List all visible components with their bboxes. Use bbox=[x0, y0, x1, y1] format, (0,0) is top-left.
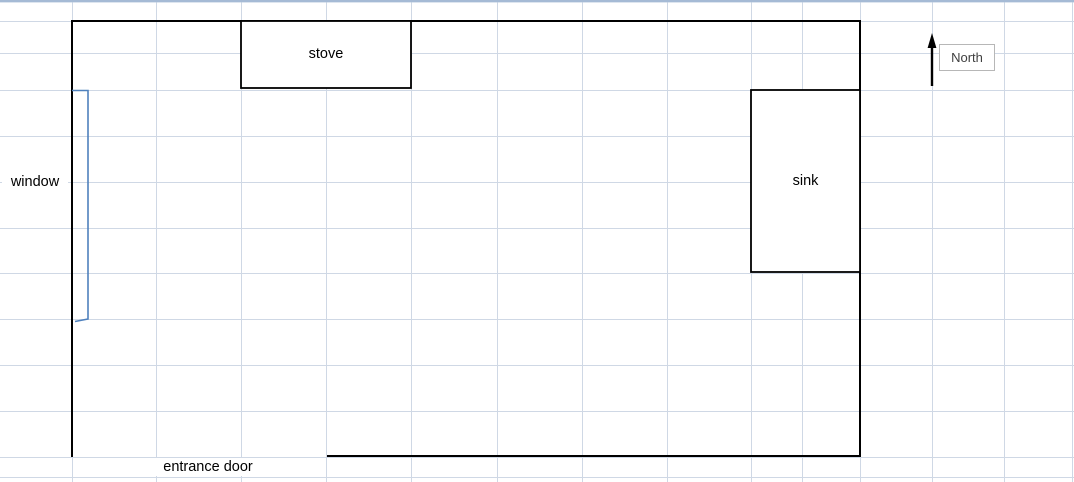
sink-label[interactable]: sink bbox=[751, 90, 860, 272]
window-label[interactable]: window bbox=[2, 169, 68, 195]
stove-label[interactable]: stove bbox=[241, 21, 411, 88]
north-arrow-icon[interactable] bbox=[928, 33, 937, 86]
spreadsheet-canvas[interactable]: stove sink window entrance door North bbox=[0, 0, 1074, 482]
entrance-door-label[interactable]: entrance door bbox=[100, 458, 316, 476]
grid-lines bbox=[0, 3, 1074, 482]
north-label-box[interactable]: North bbox=[939, 44, 995, 71]
window-line[interactable] bbox=[72, 91, 88, 322]
floor-plan-drawing bbox=[0, 0, 1074, 482]
